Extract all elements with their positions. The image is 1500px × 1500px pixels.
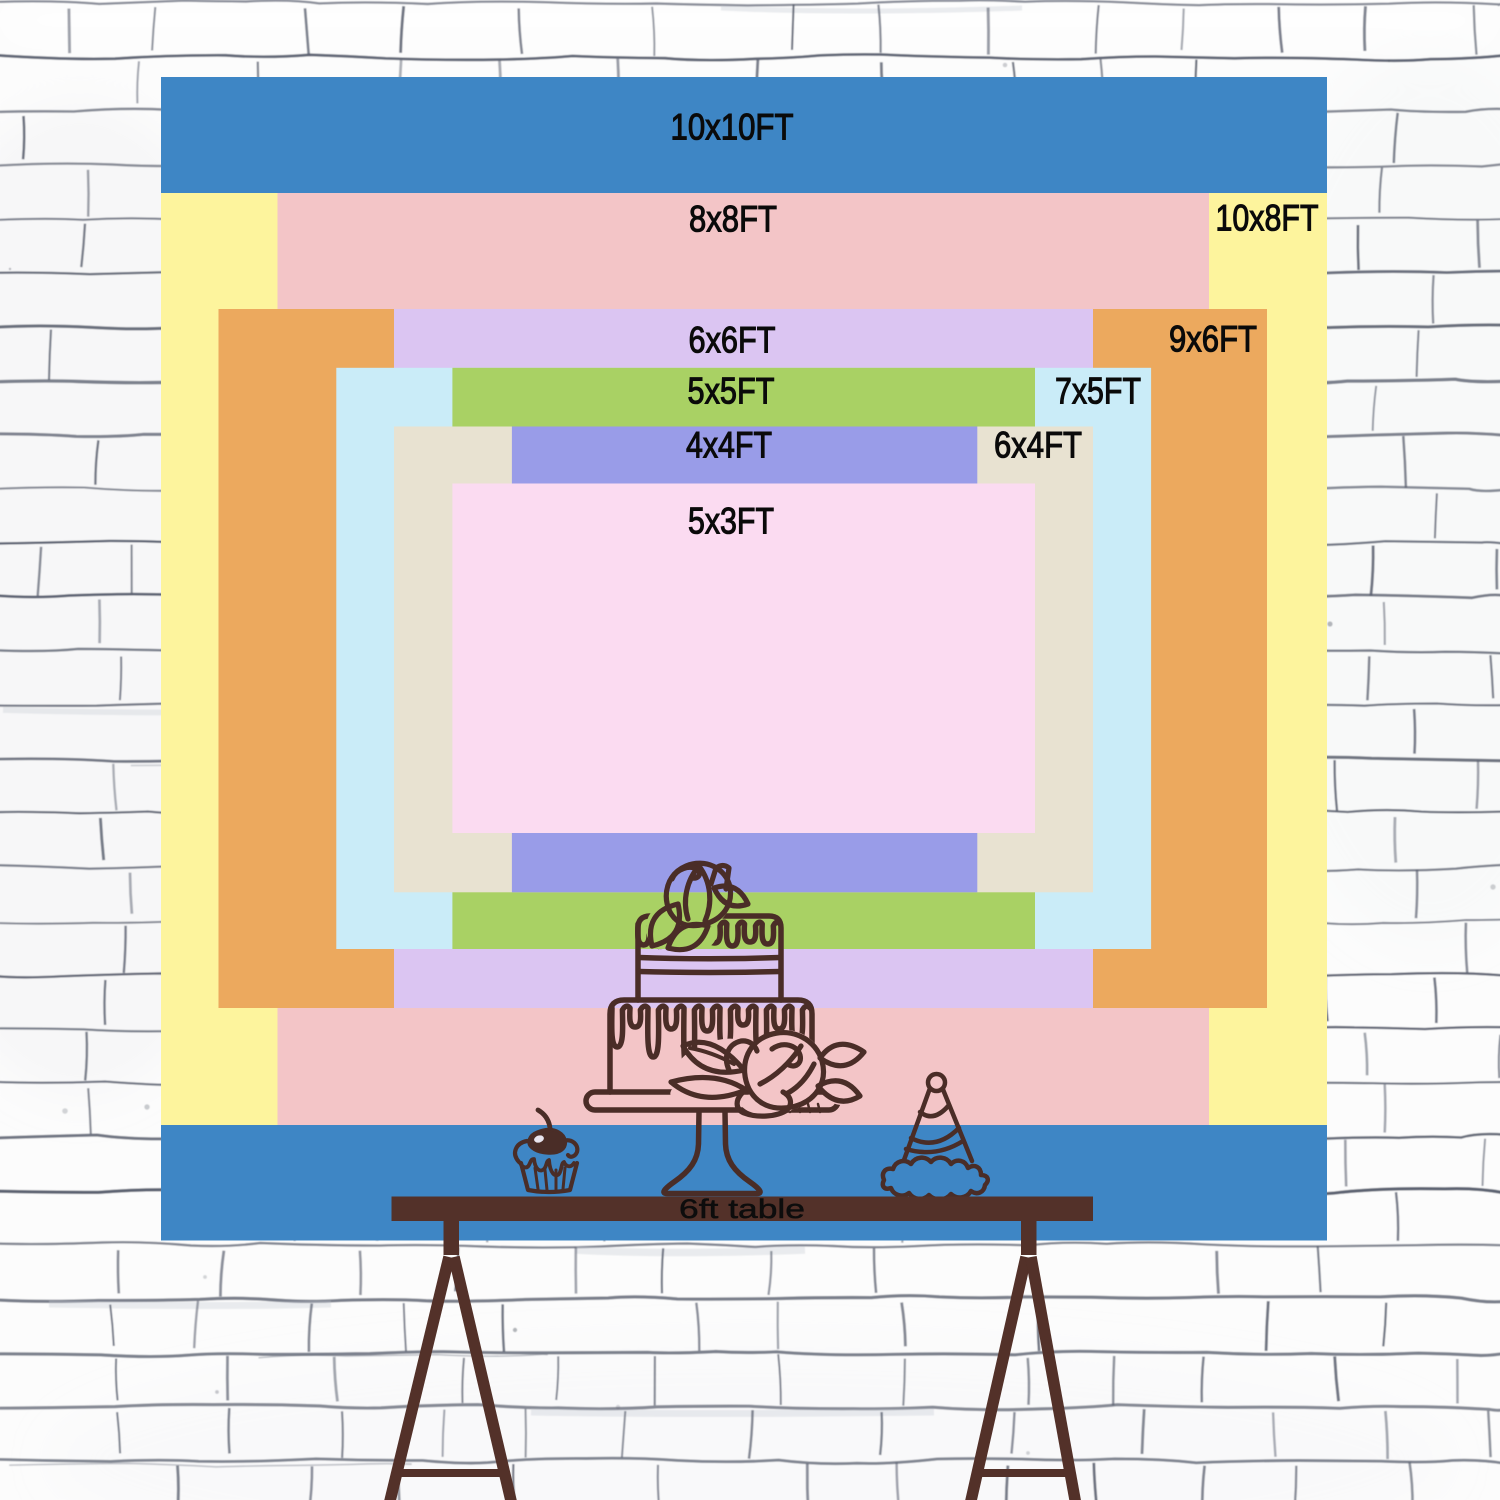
svg-text:5x3FT: 5x3FT xyxy=(688,501,774,542)
svg-text:7x5FT: 7x5FT xyxy=(1055,371,1141,412)
svg-text:6ft table: 6ft table xyxy=(679,1194,805,1224)
svg-text:4x4FT: 4x4FT xyxy=(686,425,772,466)
svg-text:10x8FT: 10x8FT xyxy=(1216,198,1319,239)
svg-text:8x8FT: 8x8FT xyxy=(689,199,777,240)
svg-text:9x6FT: 9x6FT xyxy=(1169,319,1257,360)
svg-text:10x10FT: 10x10FT xyxy=(671,107,794,148)
svg-text:6x4FT: 6x4FT xyxy=(994,425,1082,466)
svg-text:5x5FT: 5x5FT xyxy=(688,371,775,412)
svg-text:6x6FT: 6x6FT xyxy=(689,320,776,361)
